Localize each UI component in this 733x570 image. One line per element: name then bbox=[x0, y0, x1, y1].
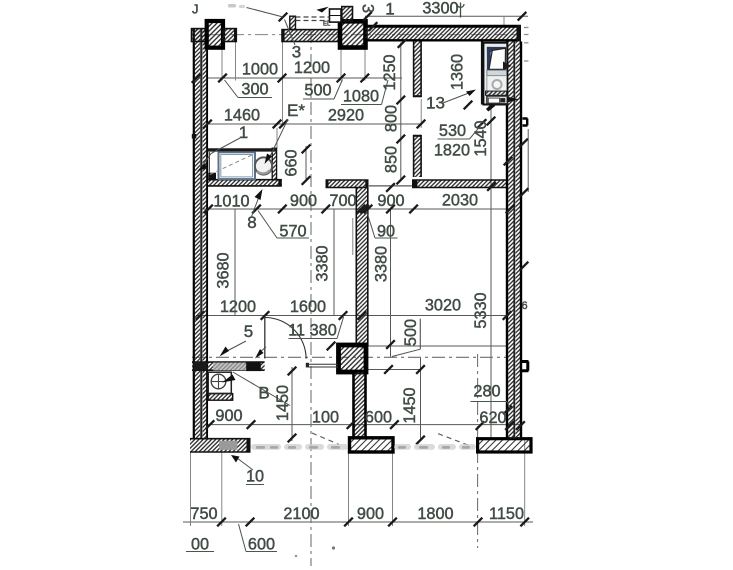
svg-text:3: 3 bbox=[359, 4, 377, 13]
svg-text:B: B bbox=[258, 384, 269, 403]
svg-text:E*: E* bbox=[287, 101, 305, 120]
svg-text:600: 600 bbox=[248, 536, 275, 554]
svg-text:500: 500 bbox=[402, 319, 420, 346]
svg-text:3020: 3020 bbox=[425, 297, 461, 315]
svg-text:530: 530 bbox=[439, 122, 466, 140]
svg-text:3: 3 bbox=[292, 43, 301, 62]
svg-text:1600: 1600 bbox=[290, 298, 326, 316]
svg-text:1800: 1800 bbox=[417, 505, 453, 523]
svg-text:500: 500 bbox=[304, 82, 331, 100]
svg-text:280: 280 bbox=[473, 383, 500, 401]
svg-text:90: 90 bbox=[377, 223, 395, 241]
svg-text:10: 10 bbox=[246, 468, 264, 486]
svg-text:620: 620 bbox=[479, 409, 506, 427]
svg-text:800: 800 bbox=[383, 105, 401, 132]
svg-text:1460: 1460 bbox=[224, 107, 260, 125]
svg-text:1080: 1080 bbox=[343, 88, 379, 106]
svg-text:3380: 3380 bbox=[373, 246, 391, 282]
svg-text:100: 100 bbox=[312, 409, 339, 427]
svg-text:1250: 1250 bbox=[381, 54, 399, 90]
svg-text:900: 900 bbox=[357, 505, 384, 523]
svg-text:900: 900 bbox=[290, 192, 317, 210]
svg-text:EL: EL bbox=[323, 22, 331, 28]
svg-text:13: 13 bbox=[426, 94, 445, 113]
svg-text:2100: 2100 bbox=[283, 505, 319, 523]
svg-text:8: 8 bbox=[247, 213, 256, 232]
svg-text:750: 750 bbox=[190, 505, 217, 523]
svg-text:570: 570 bbox=[279, 223, 306, 241]
svg-text:1: 1 bbox=[385, 0, 394, 19]
svg-text:700: 700 bbox=[329, 192, 356, 210]
svg-text:900: 900 bbox=[215, 407, 242, 425]
svg-text:1450: 1450 bbox=[274, 385, 292, 421]
svg-text:850: 850 bbox=[383, 146, 401, 173]
svg-text:300: 300 bbox=[241, 81, 268, 99]
svg-text:11 380: 11 380 bbox=[288, 322, 337, 340]
svg-text:1820: 1820 bbox=[434, 142, 470, 160]
svg-text:1010: 1010 bbox=[213, 193, 249, 211]
svg-text:5: 5 bbox=[244, 322, 253, 341]
svg-text:1450: 1450 bbox=[401, 387, 419, 423]
svg-text:3300: 3300 bbox=[422, 0, 458, 18]
svg-text:1200: 1200 bbox=[220, 298, 256, 316]
svg-text:J: J bbox=[192, 2, 199, 17]
svg-text:2920: 2920 bbox=[328, 107, 364, 125]
svg-text:3380: 3380 bbox=[314, 245, 332, 281]
svg-text:6: 6 bbox=[522, 300, 528, 312]
svg-text:5330: 5330 bbox=[472, 292, 490, 328]
svg-text:660: 660 bbox=[283, 149, 301, 176]
svg-text:3680: 3680 bbox=[215, 252, 233, 288]
svg-text:1360: 1360 bbox=[449, 54, 467, 90]
svg-text:2030: 2030 bbox=[442, 192, 478, 210]
svg-text:1540: 1540 bbox=[472, 120, 490, 156]
svg-text:1000: 1000 bbox=[242, 61, 278, 79]
svg-text:900: 900 bbox=[377, 192, 404, 210]
svg-text:1150: 1150 bbox=[489, 505, 524, 523]
svg-text:00: 00 bbox=[191, 536, 209, 554]
svg-text:1200: 1200 bbox=[294, 59, 330, 77]
svg-text:1: 1 bbox=[239, 123, 248, 142]
svg-text:600: 600 bbox=[365, 409, 392, 427]
